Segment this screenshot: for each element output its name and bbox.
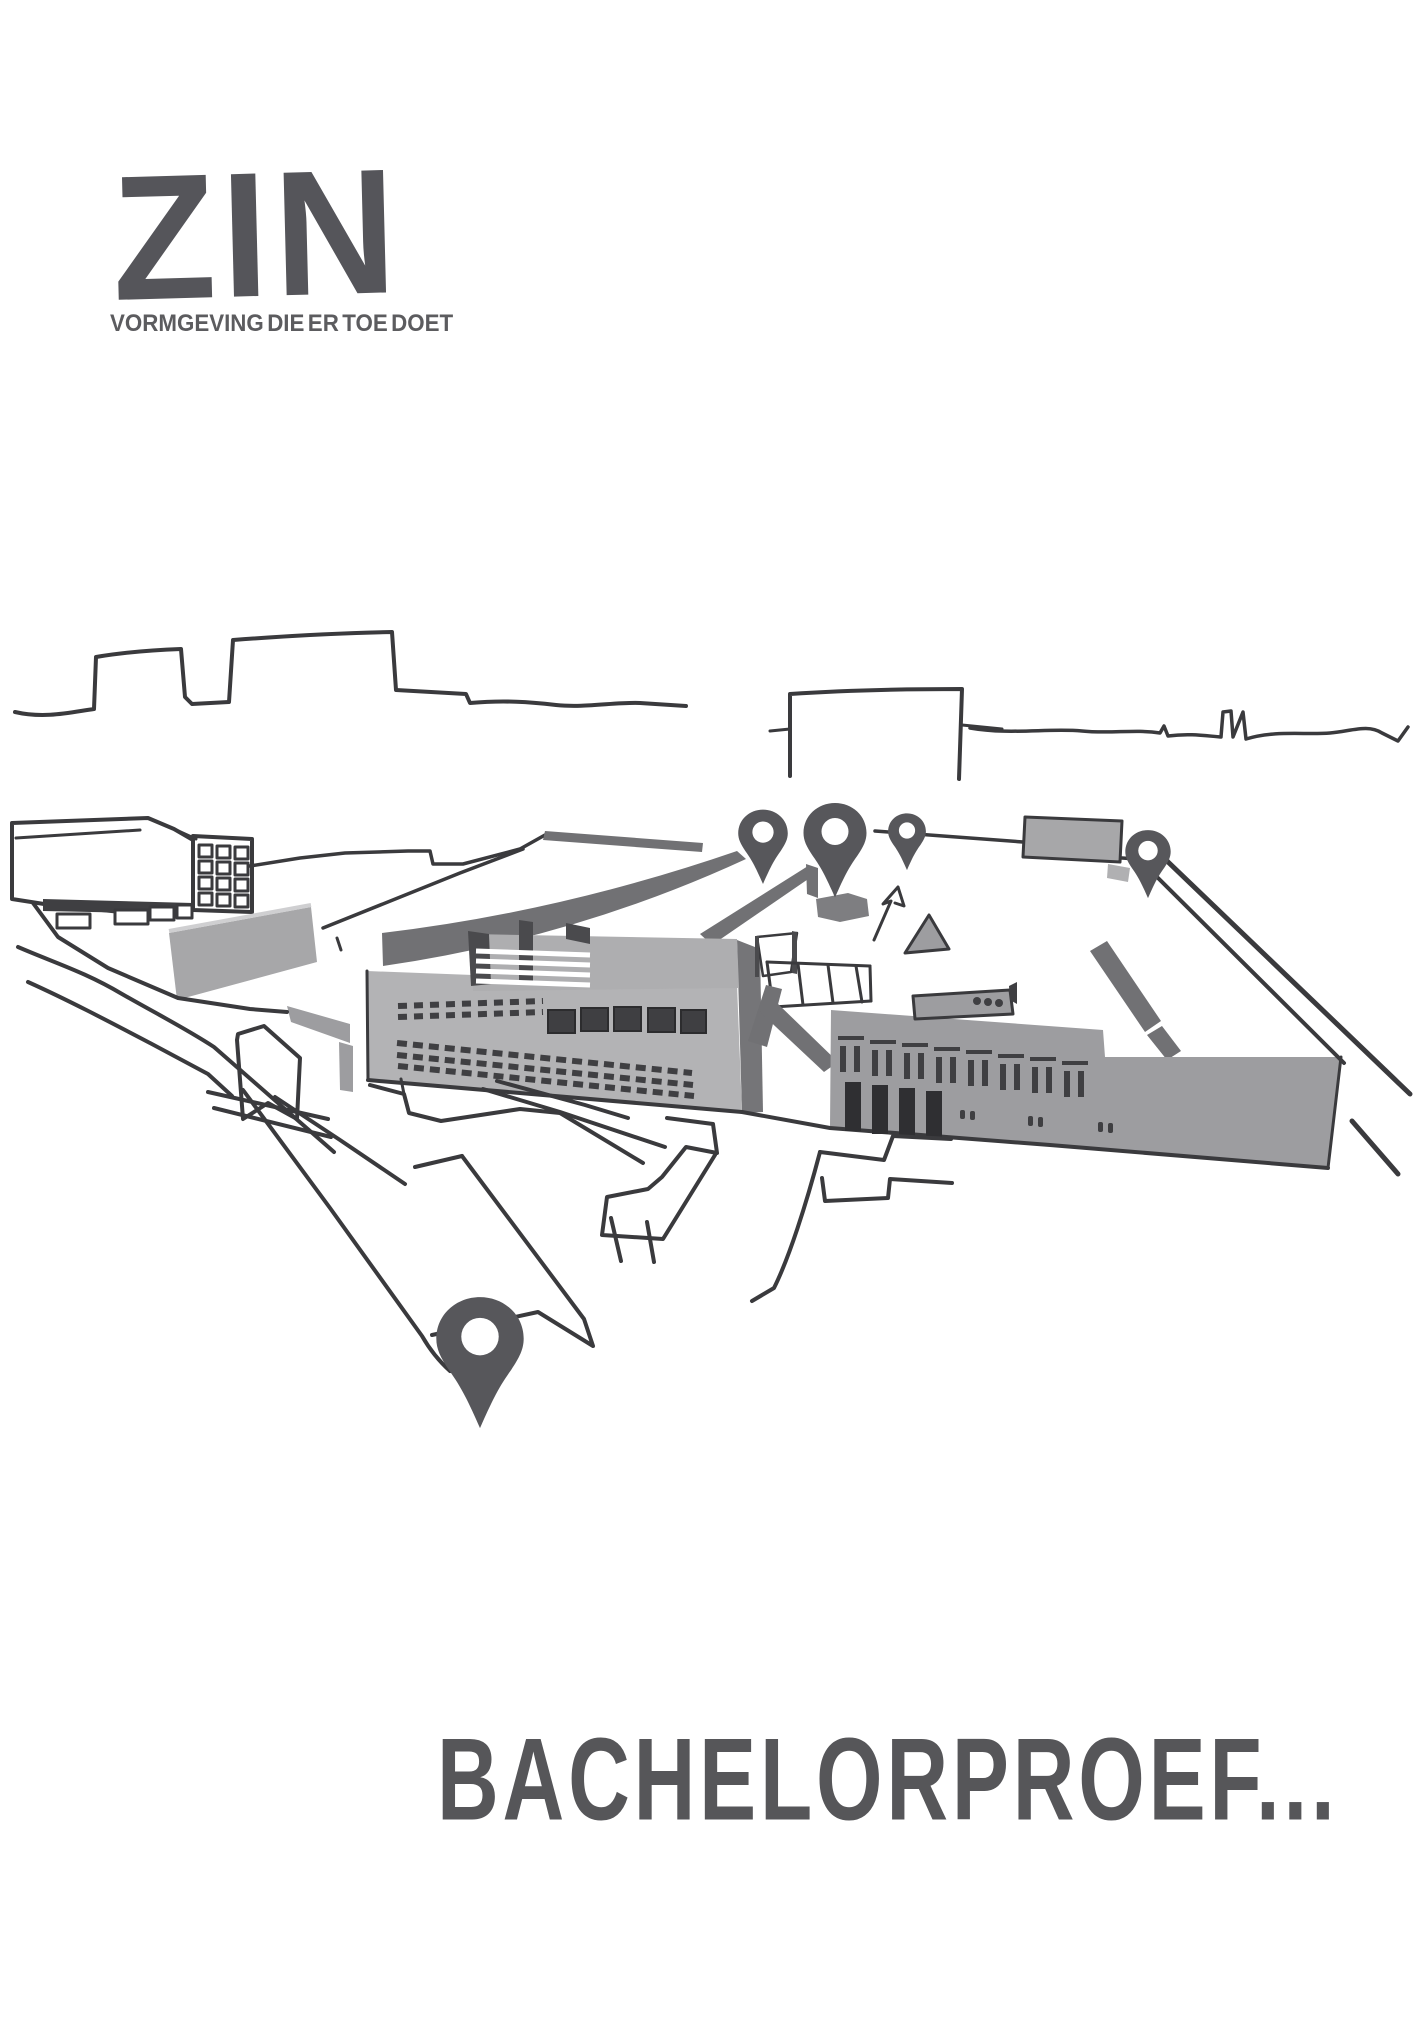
building-facade — [367, 971, 742, 1112]
poster-title: BACHELORPROEF... — [437, 1722, 1339, 1839]
map-pin-roof-east-icon — [888, 813, 926, 870]
walkway-post — [339, 1042, 353, 1092]
poster-page: ZIN VORMGEVING DIE ER TOE DOET — [0, 0, 1428, 2028]
courtyard-canopy-grid — [767, 962, 871, 1007]
map-pin-far-east-icon — [1125, 830, 1170, 898]
arrow-road-outline — [602, 1118, 717, 1239]
skyline-right — [970, 711, 1408, 741]
far-roof-edge-band — [543, 831, 703, 852]
skyline-center-box — [790, 689, 962, 779]
small-roof-triangle — [905, 915, 949, 953]
rear-gray-shed — [1023, 817, 1122, 862]
city-skyline — [15, 632, 1408, 779]
skyline-left — [15, 632, 686, 715]
rooftop-details — [816, 864, 1130, 953]
roof-wing-lower — [700, 866, 817, 945]
entrance-canopy — [757, 933, 797, 976]
map-pin-foreground-icon — [436, 1297, 523, 1428]
historic-wing-building — [742, 982, 1341, 1168]
facade-large-windows — [548, 1007, 706, 1033]
sketch-arrow — [874, 887, 904, 940]
map-pin-roof-west-icon — [738, 810, 788, 884]
ramp-wedge — [760, 1002, 838, 1072]
